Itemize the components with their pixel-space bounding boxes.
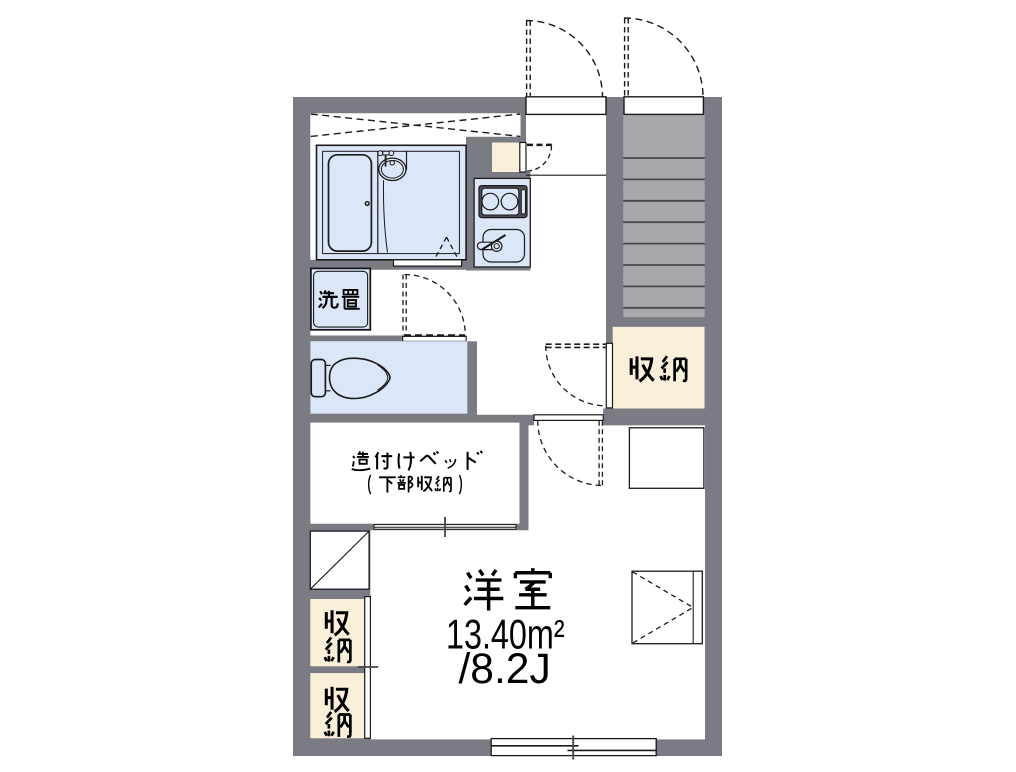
svg-text:/8.2J: /8.2J (458, 645, 550, 693)
